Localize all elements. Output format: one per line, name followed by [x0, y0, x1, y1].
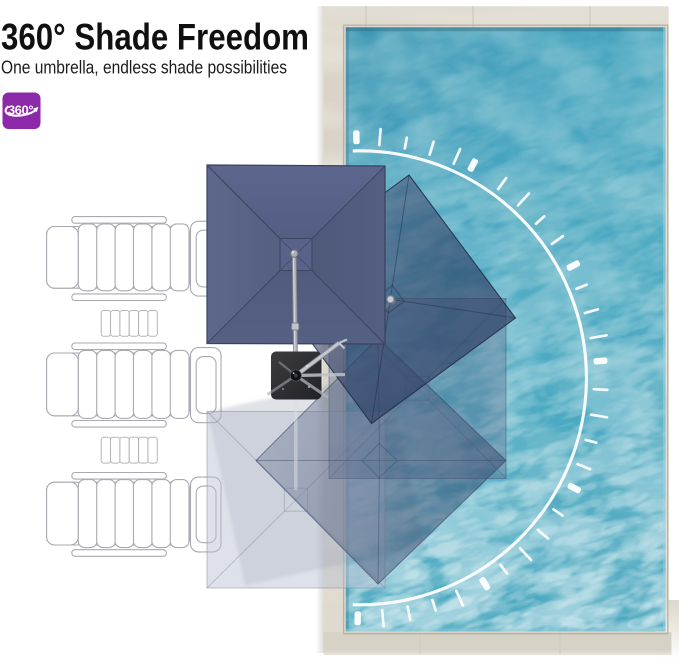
svg-text:360° Shade Freedom: 360° Shade Freedom — [1, 16, 309, 58]
svg-text:One umbrella, endless shade po: One umbrella, endless shade possibilitie… — [1, 57, 287, 78]
